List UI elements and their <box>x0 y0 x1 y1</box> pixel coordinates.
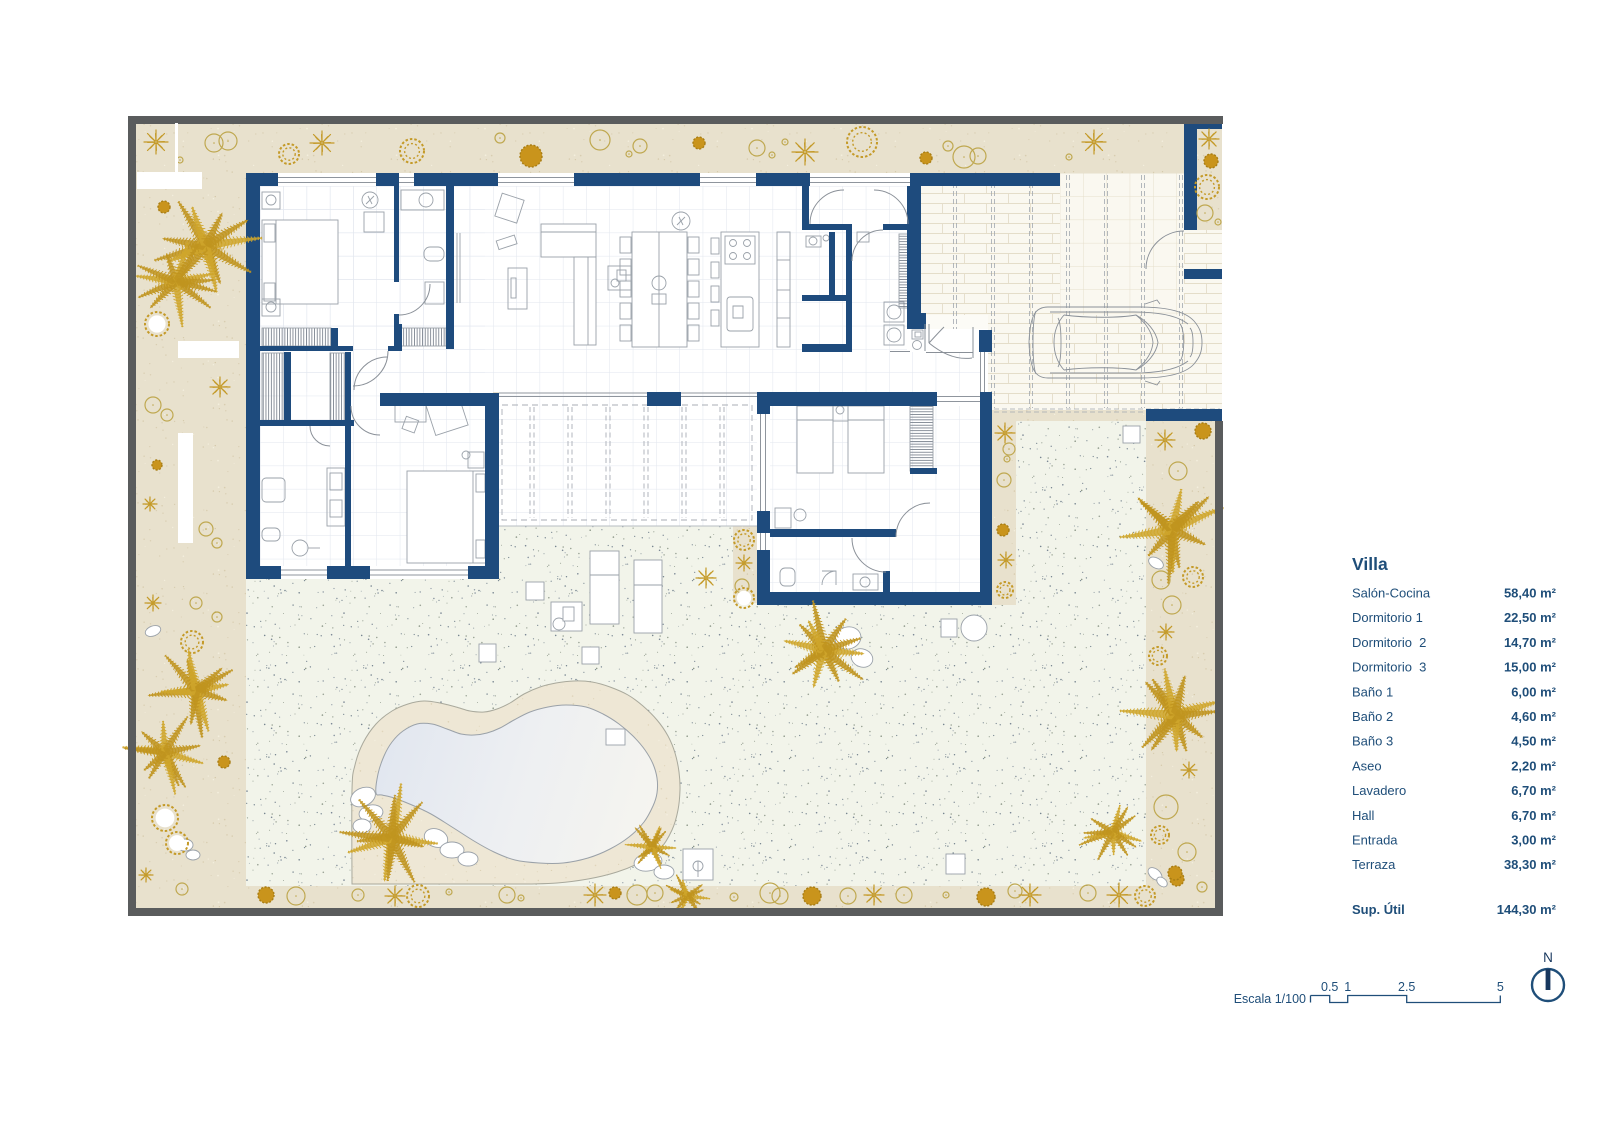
svg-text:Baño 2: Baño 2 <box>1352 709 1393 724</box>
svg-text:Baño 3: Baño 3 <box>1352 734 1393 749</box>
svg-text:5: 5 <box>1497 980 1504 994</box>
svg-text:58,40 m²: 58,40 m² <box>1504 586 1557 601</box>
svg-text:Salón-Cocina: Salón-Cocina <box>1352 586 1431 601</box>
svg-text:2.5: 2.5 <box>1398 980 1415 994</box>
svg-text:6,00 m²: 6,00 m² <box>1511 684 1556 699</box>
svg-text:144,30 m²: 144,30 m² <box>1497 902 1557 917</box>
svg-text:1: 1 <box>1344 980 1351 994</box>
svg-text:Terraza: Terraza <box>1352 857 1396 872</box>
svg-text:Escala 1/100: Escala 1/100 <box>1234 992 1306 1006</box>
svg-text:Baño 1: Baño 1 <box>1352 684 1393 699</box>
svg-text:3,00 m²: 3,00 m² <box>1511 833 1556 848</box>
svg-text:6,70 m²: 6,70 m² <box>1511 808 1556 823</box>
svg-text:Lavadero: Lavadero <box>1352 783 1406 798</box>
svg-text:0.5: 0.5 <box>1321 980 1338 994</box>
svg-text:22,50 m²: 22,50 m² <box>1504 610 1557 625</box>
svg-text:Entrada: Entrada <box>1352 833 1398 848</box>
svg-text:Aseo: Aseo <box>1352 758 1382 773</box>
svg-text:4,60 m²: 4,60 m² <box>1511 709 1556 724</box>
svg-text:2,20 m²: 2,20 m² <box>1511 758 1556 773</box>
svg-text:Dormitorio 1: Dormitorio 1 <box>1352 610 1423 625</box>
svg-text:6,70 m²: 6,70 m² <box>1511 783 1556 798</box>
svg-text:14,70 m²: 14,70 m² <box>1504 635 1557 650</box>
svg-text:N: N <box>1543 950 1553 965</box>
svg-text:Villa: Villa <box>1352 554 1388 574</box>
svg-text:Hall: Hall <box>1352 808 1375 823</box>
svg-text:Dormitorio 2: Dormitorio 2 <box>1352 635 1426 650</box>
svg-text:38,30 m²: 38,30 m² <box>1504 857 1557 872</box>
svg-text:Dormitorio 3: Dormitorio 3 <box>1352 660 1426 675</box>
svg-text:4,50 m²: 4,50 m² <box>1511 734 1556 749</box>
svg-text:Sup. Útil: Sup. Útil <box>1352 902 1405 917</box>
svg-text:15,00 m²: 15,00 m² <box>1504 660 1557 675</box>
